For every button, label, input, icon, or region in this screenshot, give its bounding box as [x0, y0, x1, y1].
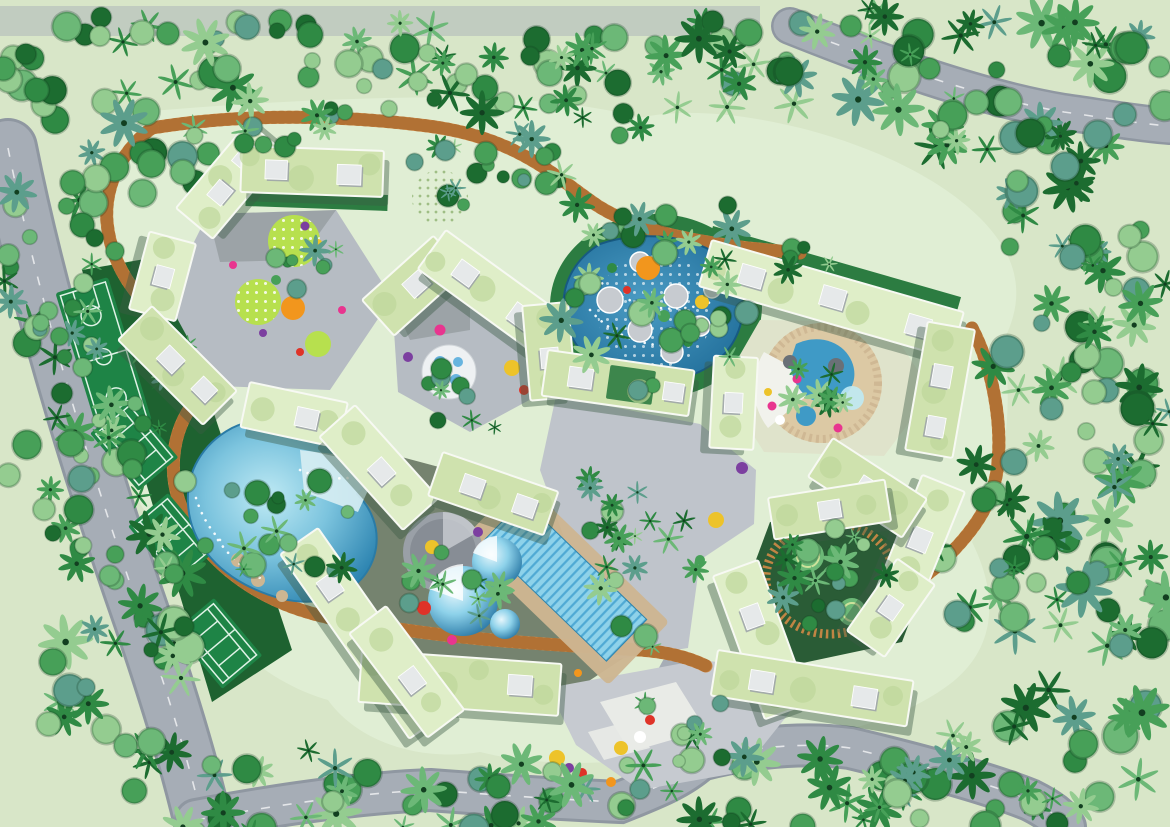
- round-tree: [239, 551, 267, 579]
- residential-bar: [238, 146, 390, 206]
- palm-tree: [460, 90, 505, 135]
- round-tree: [454, 62, 478, 86]
- round-tree: [638, 697, 656, 715]
- rooftop-unit: [662, 382, 684, 403]
- round-tree: [629, 778, 650, 799]
- rooftop-unit: [925, 415, 946, 438]
- rooftop-unit: [851, 686, 878, 710]
- round-tree: [722, 813, 740, 827]
- round-tree: [340, 505, 354, 519]
- round-tree: [839, 15, 862, 38]
- round-tree: [128, 178, 158, 208]
- round-tree: [287, 132, 301, 146]
- round-tree: [89, 25, 111, 47]
- round-tree: [213, 54, 242, 83]
- rooftop-unit: [931, 363, 954, 388]
- round-tree: [1046, 43, 1071, 68]
- top-path-strip: [0, 6, 760, 36]
- rooftop-unit: [724, 392, 743, 413]
- round-tree: [521, 46, 540, 65]
- site-plan-rendering: [0, 0, 1170, 827]
- rooftop-unit: [265, 160, 288, 180]
- round-tree: [144, 642, 159, 657]
- round-tree: [32, 497, 56, 521]
- round-tree: [802, 616, 818, 632]
- round-tree: [243, 508, 259, 524]
- round-tree: [381, 100, 398, 117]
- round-tree: [399, 593, 419, 613]
- rooftop-unit: [817, 499, 842, 520]
- round-tree: [1040, 397, 1063, 420]
- round-tree: [163, 563, 184, 584]
- rooftop-unit: [567, 366, 594, 389]
- round-tree: [287, 255, 299, 267]
- round-tree: [494, 91, 515, 112]
- round-tree: [1001, 238, 1018, 255]
- rooftop-unit: [507, 674, 532, 696]
- round-tree: [174, 616, 194, 636]
- round-tree: [63, 494, 94, 525]
- rooftop-unit: [337, 164, 362, 185]
- round-tree: [1077, 422, 1095, 440]
- round-tree: [1066, 571, 1089, 594]
- round-tree: [652, 240, 678, 266]
- round-tree: [32, 314, 50, 332]
- round-tree: [1069, 729, 1099, 759]
- round-tree: [280, 534, 298, 552]
- rooftop-unit: [748, 669, 775, 693]
- round-tree: [86, 229, 104, 247]
- masterplan-canvas: [0, 0, 1170, 827]
- orange-play-circle: [281, 296, 305, 320]
- round-tree: [1108, 633, 1133, 658]
- residential-bar: [700, 355, 758, 456]
- round-tree: [304, 53, 320, 69]
- rooftop-unit: [294, 407, 319, 430]
